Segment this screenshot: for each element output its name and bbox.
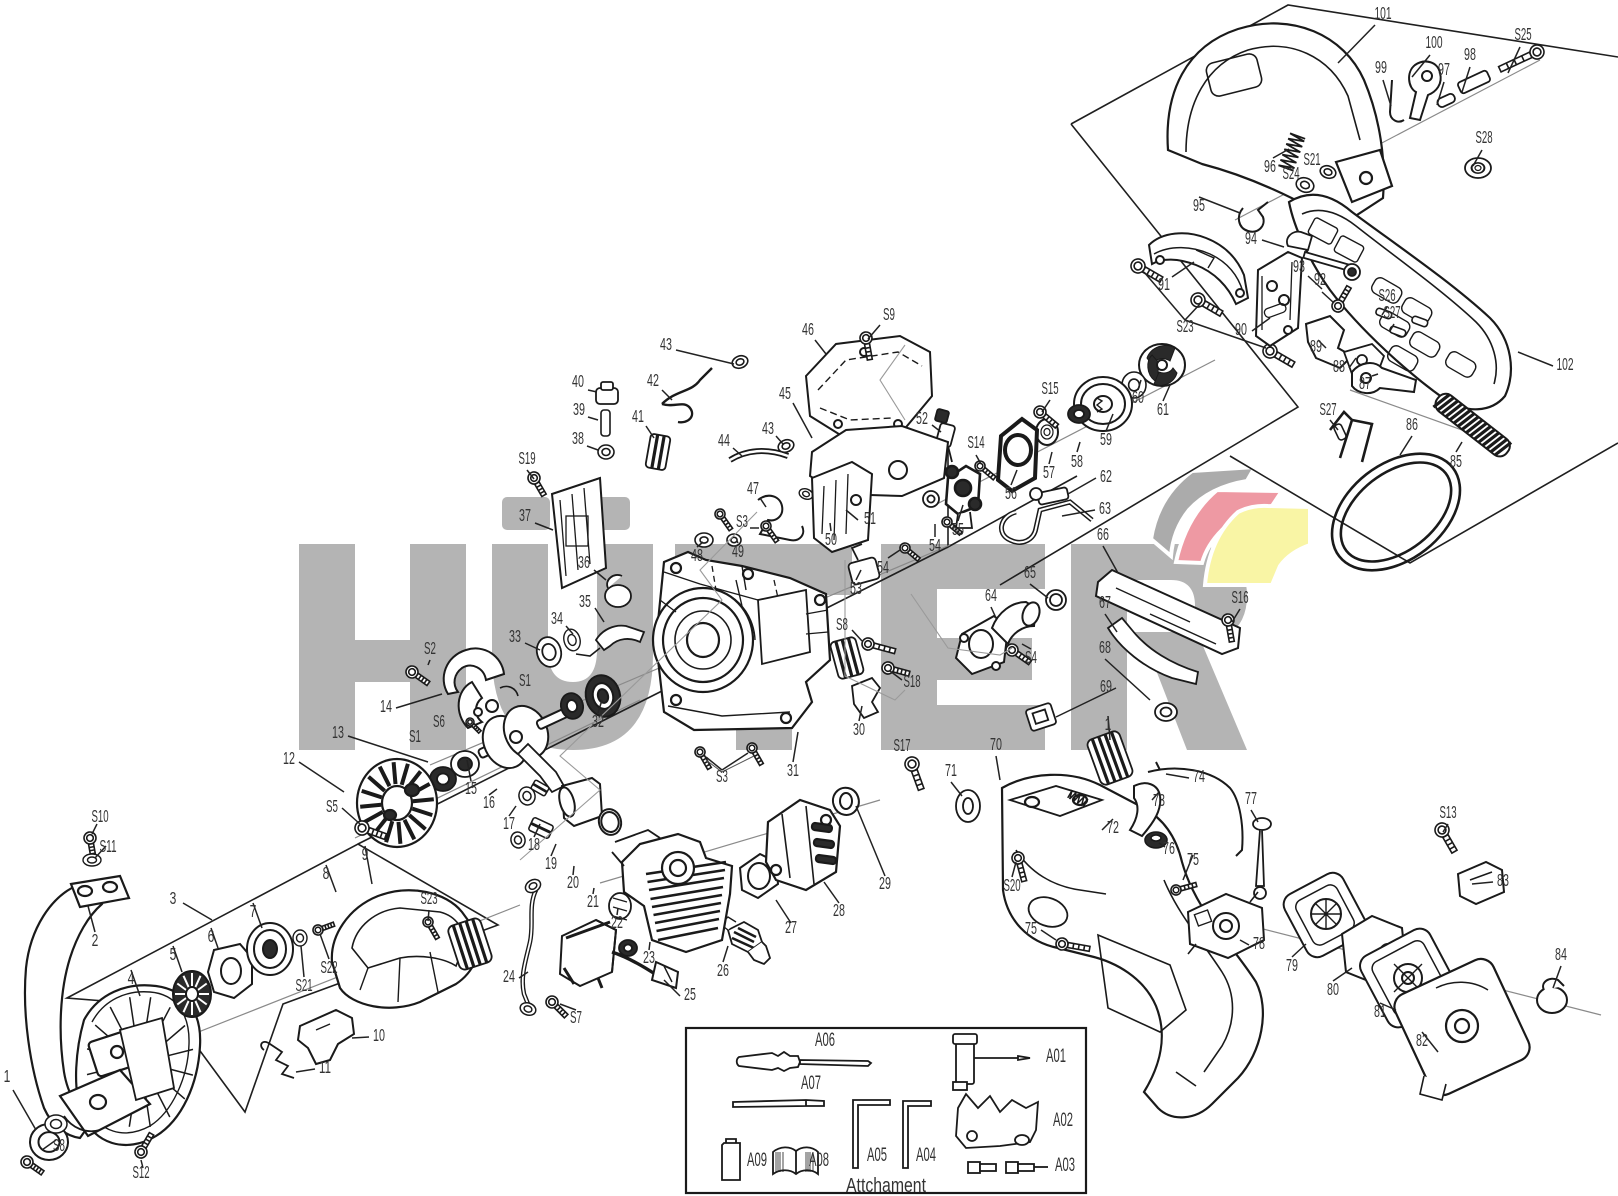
svg-text:S13: S13 <box>1439 802 1456 822</box>
svg-text:7: 7 <box>250 901 257 921</box>
svg-text:1: 1 <box>4 1066 11 1086</box>
svg-text:A07: A07 <box>801 1073 821 1094</box>
svg-text:88: 88 <box>1333 356 1345 376</box>
svg-text:5: 5 <box>170 944 177 964</box>
svg-text:90: 90 <box>1235 319 1247 339</box>
svg-text:S28: S28 <box>1475 127 1492 147</box>
svg-text:89: 89 <box>1310 336 1322 356</box>
svg-text:63: 63 <box>1099 498 1111 518</box>
svg-text:S15: S15 <box>1041 378 1058 398</box>
svg-text:S10: S10 <box>91 806 108 826</box>
svg-text:S21: S21 <box>1303 149 1320 169</box>
svg-text:S24: S24 <box>1282 163 1299 183</box>
svg-text:S8: S8 <box>53 1135 65 1155</box>
svg-text:20: 20 <box>567 872 579 892</box>
svg-text:S1: S1 <box>409 726 421 746</box>
svg-text:8: 8 <box>323 863 330 883</box>
svg-text:57: 57 <box>1043 462 1055 482</box>
svg-text:61: 61 <box>1157 399 1169 419</box>
svg-text:12: 12 <box>283 748 295 768</box>
svg-text:S7: S7 <box>570 1007 582 1027</box>
svg-text:S17: S17 <box>893 735 910 755</box>
svg-text:93: 93 <box>1293 256 1305 276</box>
svg-text:13: 13 <box>332 722 344 742</box>
svg-text:54: 54 <box>877 557 889 577</box>
svg-text:101: 101 <box>1374 3 1391 23</box>
svg-text:82: 82 <box>1416 1030 1428 1050</box>
svg-text:2: 2 <box>92 930 99 950</box>
svg-text:78: 78 <box>1253 933 1265 953</box>
svg-text:S22: S22 <box>320 957 337 977</box>
svg-text:38: 38 <box>572 428 584 448</box>
svg-text:A01: A01 <box>1046 1046 1066 1067</box>
svg-text:S25: S25 <box>1514 24 1531 44</box>
svg-text:47: 47 <box>747 478 759 498</box>
svg-text:68: 68 <box>1099 637 1111 657</box>
svg-text:A05: A05 <box>867 1145 887 1166</box>
svg-text:46: 46 <box>802 319 814 339</box>
svg-text:42: 42 <box>647 370 659 390</box>
svg-text:28: 28 <box>833 900 845 920</box>
svg-text:10: 10 <box>373 1025 385 1045</box>
svg-text:14: 14 <box>380 696 392 716</box>
svg-text:95: 95 <box>1193 195 1205 215</box>
svg-text:39: 39 <box>573 399 585 419</box>
svg-text:67: 67 <box>1099 592 1111 612</box>
svg-text:21: 21 <box>587 891 599 911</box>
svg-text:80: 80 <box>1327 979 1339 999</box>
svg-text:60: 60 <box>1132 387 1144 407</box>
svg-text:18: 18 <box>528 834 540 854</box>
svg-text:17: 17 <box>503 813 515 833</box>
svg-text:96: 96 <box>1264 156 1276 176</box>
svg-text:33: 33 <box>509 626 521 646</box>
svg-text:79: 79 <box>1286 955 1298 975</box>
svg-text:S21: S21 <box>295 975 312 995</box>
svg-text:98: 98 <box>1464 44 1476 64</box>
svg-text:35: 35 <box>579 591 591 611</box>
svg-text:A03: A03 <box>1055 1155 1075 1176</box>
svg-text:S14: S14 <box>967 432 984 452</box>
svg-text:69: 69 <box>1100 676 1112 696</box>
svg-text:30: 30 <box>853 719 865 739</box>
svg-text:S9: S9 <box>883 304 895 324</box>
svg-text:53: 53 <box>850 578 862 598</box>
svg-text:54: 54 <box>929 535 941 555</box>
svg-text:73: 73 <box>1153 790 1165 810</box>
svg-text:16: 16 <box>483 792 495 812</box>
svg-text:S16: S16 <box>1231 587 1248 607</box>
svg-text:S3: S3 <box>736 511 748 531</box>
svg-text:S4: S4 <box>1025 647 1037 667</box>
svg-text:9: 9 <box>362 844 369 864</box>
svg-text:43: 43 <box>660 334 672 354</box>
svg-text:70: 70 <box>990 734 1002 754</box>
svg-text:4: 4 <box>128 968 135 988</box>
svg-text:91: 91 <box>1158 274 1170 294</box>
svg-text:102: 102 <box>1556 354 1573 374</box>
svg-text:Attchament: Attchament <box>846 1175 926 1196</box>
svg-text:A02: A02 <box>1053 1110 1073 1131</box>
svg-text:41: 41 <box>632 406 644 426</box>
svg-text:48: 48 <box>691 545 703 565</box>
svg-text:85: 85 <box>1450 451 1462 471</box>
svg-text:51: 51 <box>864 508 876 528</box>
svg-text:72: 72 <box>1107 817 1119 837</box>
svg-text:77: 77 <box>1245 788 1257 808</box>
svg-text:75: 75 <box>1025 918 1037 938</box>
svg-text:74: 74 <box>1193 766 1205 786</box>
svg-text:A04: A04 <box>916 1145 936 1166</box>
svg-text:62: 62 <box>1100 466 1112 486</box>
svg-text:6: 6 <box>208 926 215 946</box>
svg-text:94: 94 <box>1245 228 1257 248</box>
svg-text:50: 50 <box>825 529 837 549</box>
svg-text:S6: S6 <box>433 711 445 731</box>
svg-text:40: 40 <box>572 371 584 391</box>
svg-text:24: 24 <box>503 966 515 986</box>
svg-text:11: 11 <box>319 1057 331 1077</box>
svg-text:59: 59 <box>1100 429 1112 449</box>
svg-text:64: 64 <box>985 585 997 605</box>
svg-text:S23: S23 <box>1176 316 1193 336</box>
svg-text:S27: S27 <box>1383 302 1400 322</box>
svg-text:29: 29 <box>879 873 891 893</box>
svg-text:23: 23 <box>643 947 655 967</box>
svg-text:S1: S1 <box>519 670 531 690</box>
svg-text:65: 65 <box>1024 562 1036 582</box>
svg-text:S27: S27 <box>1319 399 1336 419</box>
svg-text:87: 87 <box>1359 373 1371 393</box>
svg-text:83: 83 <box>1497 870 1509 890</box>
svg-text:25: 25 <box>684 984 696 1004</box>
svg-text:22: 22 <box>611 912 623 932</box>
svg-text:S2: S2 <box>424 638 436 658</box>
svg-text:71: 71 <box>945 760 957 780</box>
svg-text:76: 76 <box>1163 838 1175 858</box>
svg-text:S3: S3 <box>716 766 728 786</box>
svg-text:S12: S12 <box>132 1162 149 1182</box>
svg-text:A06: A06 <box>815 1030 835 1051</box>
svg-text:34: 34 <box>551 608 563 628</box>
svg-text:A08: A08 <box>809 1150 829 1171</box>
svg-text:66: 66 <box>1097 524 1109 544</box>
svg-text:75: 75 <box>1187 849 1199 869</box>
svg-text:S18: S18 <box>903 671 920 691</box>
svg-text:49: 49 <box>732 541 744 561</box>
svg-text:86: 86 <box>1406 414 1418 434</box>
svg-text:S8: S8 <box>836 614 848 634</box>
svg-text:S20: S20 <box>1003 875 1020 895</box>
svg-text:26: 26 <box>717 960 729 980</box>
svg-text:55: 55 <box>952 519 964 539</box>
svg-text:81: 81 <box>1374 1001 1386 1021</box>
svg-text:S23: S23 <box>420 888 437 908</box>
svg-text:19: 19 <box>545 853 557 873</box>
svg-text:A09: A09 <box>747 1150 767 1171</box>
svg-text:100: 100 <box>1425 32 1442 52</box>
svg-text:43: 43 <box>762 418 774 438</box>
svg-text:S19: S19 <box>518 448 535 468</box>
svg-text:S5: S5 <box>326 796 338 816</box>
svg-text:27: 27 <box>785 917 797 937</box>
svg-text:36: 36 <box>578 552 590 572</box>
svg-text:56: 56 <box>1005 483 1017 503</box>
svg-text:92: 92 <box>1314 269 1326 289</box>
svg-text:84: 84 <box>1555 944 1567 964</box>
svg-text:32: 32 <box>592 711 604 731</box>
svg-text:52: 52 <box>916 408 928 428</box>
svg-text:58: 58 <box>1071 451 1083 471</box>
svg-text:44: 44 <box>718 430 730 450</box>
svg-text:3: 3 <box>170 888 177 908</box>
svg-text:S11: S11 <box>99 836 116 856</box>
svg-text:31: 31 <box>787 760 799 780</box>
svg-text:99: 99 <box>1375 57 1387 77</box>
svg-text:37: 37 <box>519 505 531 525</box>
svg-text:97: 97 <box>1438 59 1450 79</box>
svg-text:1: 1 <box>1105 714 1112 734</box>
svg-text:45: 45 <box>779 383 791 403</box>
svg-text:15: 15 <box>465 778 477 798</box>
